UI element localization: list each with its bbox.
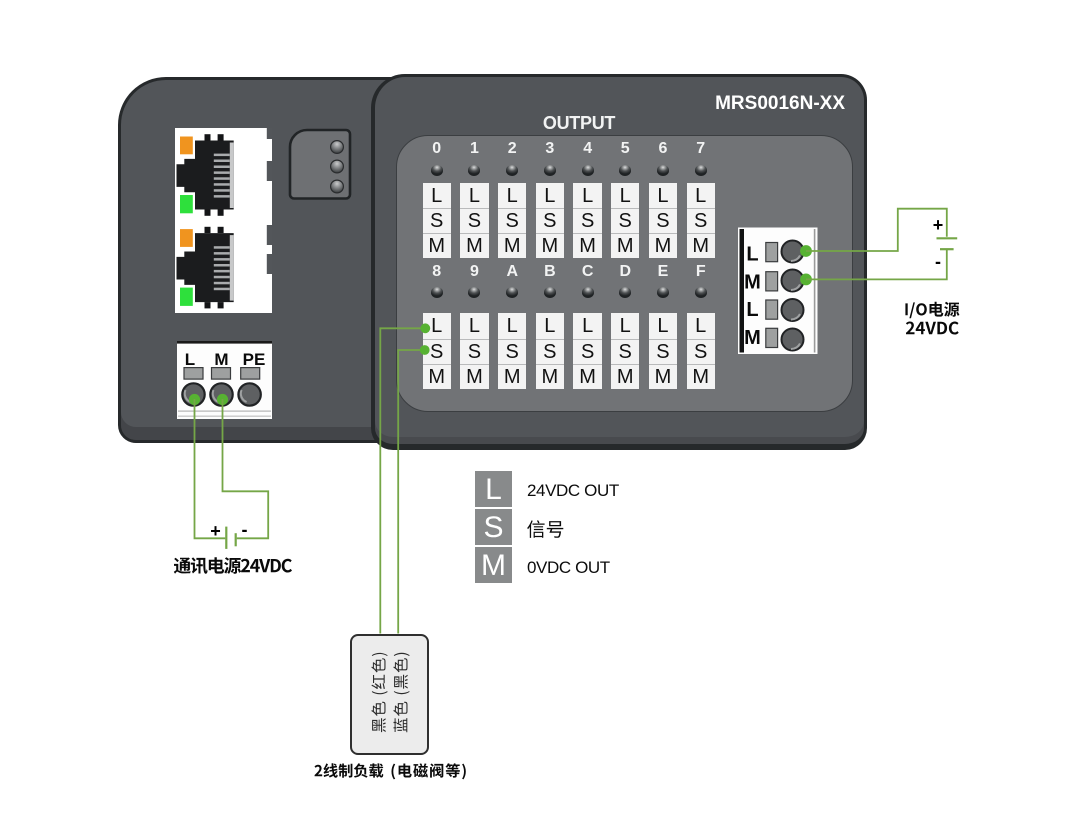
svg-text:+: + [210,521,221,541]
svg-text:M: M [744,271,761,293]
svg-text:M: M [214,350,228,369]
svg-text:PE: PE [243,350,266,369]
svg-text:+: + [933,215,944,235]
svg-text:L: L [185,350,195,369]
svg-text:L: L [746,244,758,266]
svg-text:M: M [744,327,761,349]
svg-text:-: - [935,252,941,272]
svg-text:-: - [242,520,248,540]
svg-text:L: L [746,299,758,321]
